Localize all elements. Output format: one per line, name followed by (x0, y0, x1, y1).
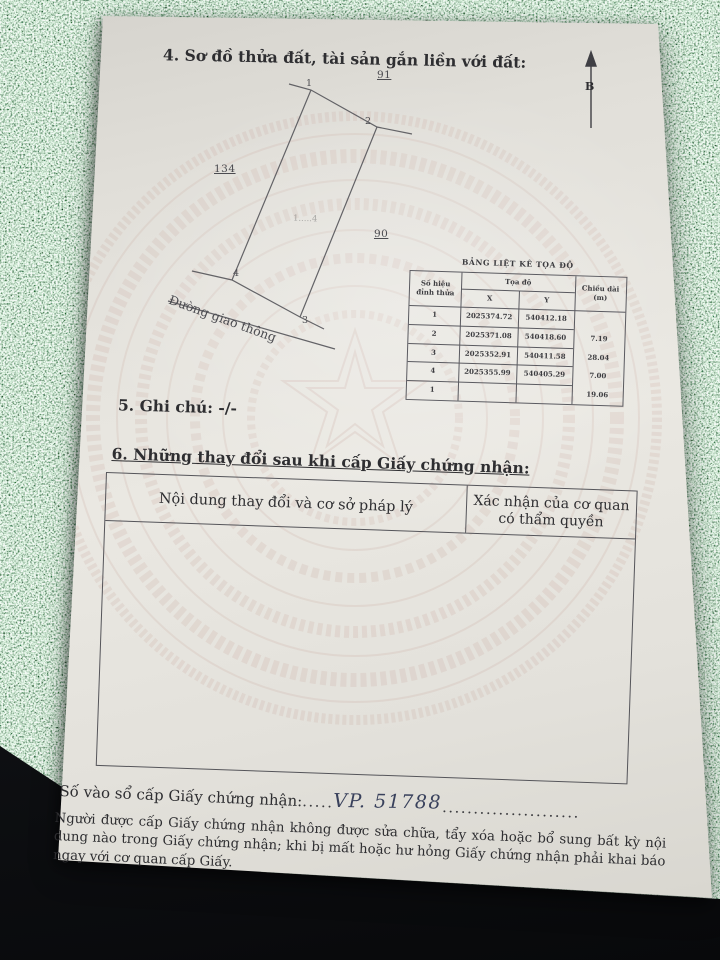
header-x: X (460, 289, 519, 309)
vertex-label-4: 4 (233, 268, 239, 279)
cell-y: 540405.29 (516, 364, 573, 385)
changes-col2-header: Xác nhận của cơ quan có thẩm quyền (466, 486, 637, 539)
section4-heading: 4. Sơ đồ thửa đất, tài sản gắn liền với … (163, 45, 527, 72)
photo-of-land-certificate-page: 4. Sơ đồ thửa đất, tài sản gắn liền với … (0, 0, 720, 960)
coordinate-table: BẢNG LIỆT KÊ TỌA ĐỘ Số hiệu đỉnh thửa T (405, 256, 629, 407)
adjacent-parcel-91: 91 (377, 69, 391, 81)
north-label: B (585, 80, 594, 93)
coordinate-table-grid: Số hiệu đỉnh thửa Tọa độ X Y Chiều dài (… (405, 270, 627, 407)
cell-id: 3 (408, 343, 460, 363)
changes-table-body-empty (97, 521, 635, 782)
cell-x: 2025371.08 (459, 326, 518, 347)
vertex-label-1: 1 (306, 78, 312, 89)
cell-id: 1 (407, 380, 459, 401)
registry-handwritten-value: VP. 51788 (334, 790, 443, 814)
page-content: 4. Sơ đồ thửa đất, tài sản gắn liền với … (0, 0, 720, 960)
registry-label: Số vào sổ cấp Giấy chứng nhận: (59, 782, 303, 810)
adjacent-parcel-134: 134 (214, 163, 236, 175)
cell-length: 7.19 (573, 329, 625, 350)
header-vertex-number: Số hiệu đỉnh thửa (409, 271, 461, 307)
cell-x: 2025374.72 (460, 307, 519, 328)
section6-heading: 6. Những thay đổi sau khi cấp Giấy chứng… (111, 444, 530, 478)
cell-length: 7.00 (572, 366, 624, 387)
vertex-label-2: 2 (365, 116, 371, 127)
cell-x: 2025352.91 (459, 345, 518, 365)
coordinate-table-title: BẢNG LIỆT KÊ TỌA ĐỘ (410, 256, 626, 272)
header-length-line2: (m) (593, 294, 607, 303)
parcel-edge-left (232, 90, 311, 280)
cell-id: 2 (408, 324, 460, 345)
header-length: Chiều dài (m) (574, 276, 626, 312)
registry-dots-after: ...................... (442, 798, 581, 822)
cell-length: 19.06 (571, 385, 623, 406)
vertex-label-3: 3 (302, 315, 308, 326)
cell-length: 28.04 (573, 348, 625, 368)
cell-x: 2025355.99 (458, 363, 517, 384)
cell-id: 1 (409, 305, 461, 326)
boundary-line-top (289, 84, 412, 134)
section5-note: 5. Ghi chú: -/- (118, 395, 237, 417)
cell-y: 540412.18 (518, 308, 575, 329)
cell-y: 540418.60 (517, 327, 574, 348)
header-vertex-line2: đỉnh thửa (416, 288, 454, 298)
registry-dots-before: ..... (302, 792, 334, 811)
changes-table: Nội dung thay đổi và cơ sở pháp lý Xác n… (96, 472, 638, 784)
road-label: Đường giao thông (167, 292, 279, 345)
parcel-center-faint-mark: 1.....4 (293, 214, 318, 225)
cell-id: 4 (407, 361, 459, 382)
adjacent-parcel-90: 90 (374, 228, 388, 240)
cell-y: 540411.58 (517, 346, 574, 366)
changes-col2-line2: có thẩm quyền (498, 510, 604, 530)
header-y: Y (518, 290, 575, 310)
